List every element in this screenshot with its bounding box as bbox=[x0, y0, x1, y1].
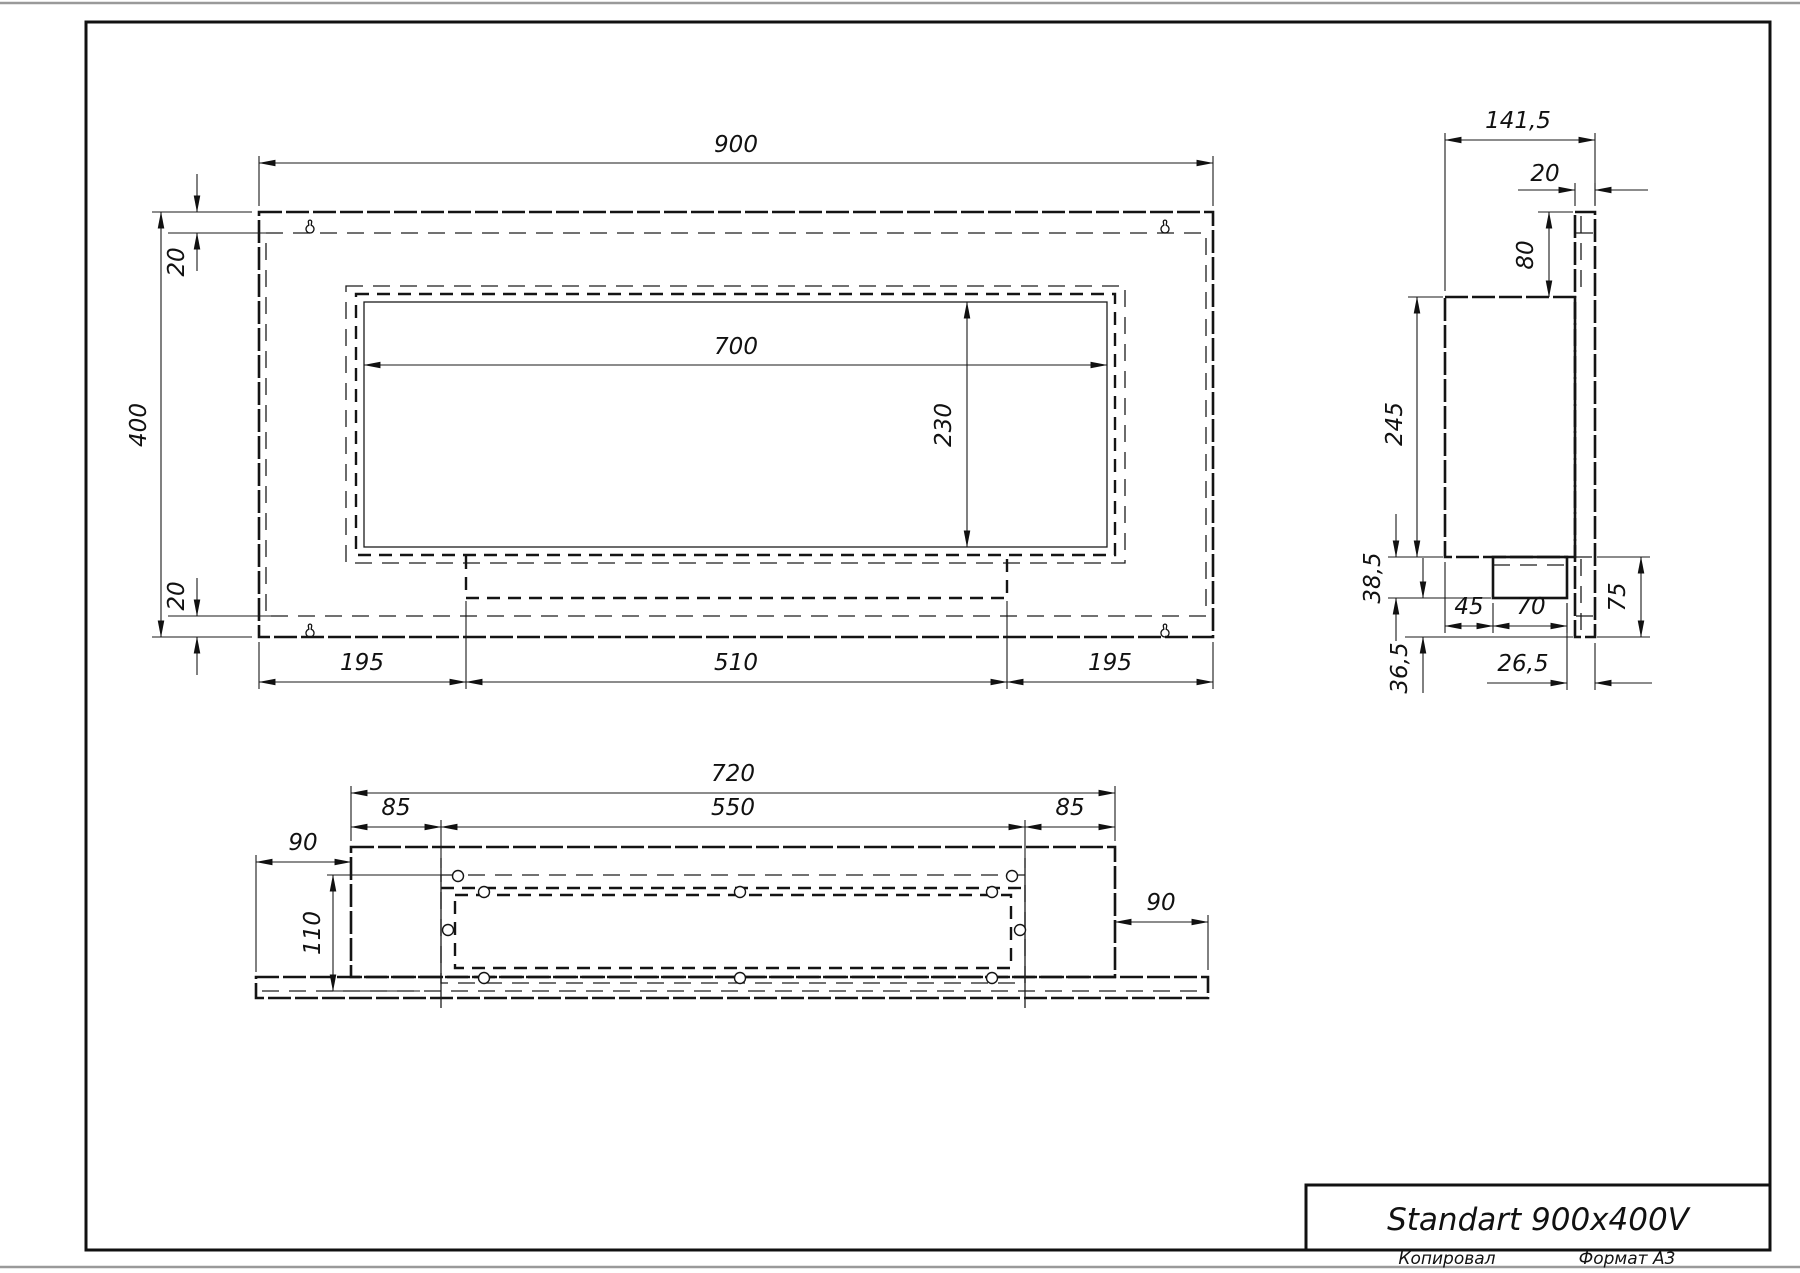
keyhole-slot-icon bbox=[1161, 624, 1169, 637]
dim-bottom-pattern-depth: 110 bbox=[300, 911, 326, 955]
dim-bottom-left-overhang: 90 bbox=[288, 830, 317, 856]
copied-label: Копировал bbox=[1398, 1249, 1495, 1269]
bottom-plate bbox=[256, 977, 1208, 998]
drawing-canvas: 900 400 20 20 700 230 195 510 195 bbox=[0, 0, 1800, 1273]
dim-bottom-right-overhang: 90 bbox=[1146, 890, 1175, 916]
drawing-title: Standart 900x400V bbox=[1387, 1202, 1692, 1238]
side-front-panel bbox=[1575, 212, 1595, 637]
side-tray bbox=[1493, 557, 1567, 598]
dim-bottom-body-width: 720 bbox=[711, 761, 755, 787]
front-hidden-outer-opening bbox=[346, 286, 1125, 563]
format-label: Формат A3 bbox=[1579, 1249, 1676, 1269]
dim-front-overall-height: 400 bbox=[126, 403, 152, 447]
dim-bottom-left-hole-offset: 85 bbox=[381, 795, 410, 821]
title-block: Standart 900x400V bbox=[1306, 1185, 1770, 1250]
drawing-sheet: 900 400 20 20 700 230 195 510 195 bbox=[0, 0, 1800, 1273]
front-outer-panel bbox=[259, 212, 1213, 637]
bottom-body bbox=[351, 847, 1115, 977]
dim-side-tray-to-front: 26,5 bbox=[1497, 651, 1548, 677]
bottom-view-dimensions: 720 85 550 85 90 110 90 bbox=[256, 761, 1208, 991]
dim-side-bottom-right-height: 75 bbox=[1605, 582, 1631, 611]
dim-front-right-offset: 195 bbox=[1088, 650, 1132, 676]
side-body bbox=[1445, 297, 1575, 557]
dim-front-opening-width: 700 bbox=[714, 334, 758, 360]
dim-side-body-height: 245 bbox=[1382, 402, 1408, 446]
sheet-border bbox=[0, 3, 1800, 1267]
dim-side-overall-depth: 141,5 bbox=[1485, 108, 1551, 134]
dim-front-overall-width: 900 bbox=[714, 132, 758, 158]
dim-side-tray-width: 70 bbox=[1516, 594, 1545, 620]
dim-side-bottom-inset: 36,5 bbox=[1387, 642, 1413, 693]
dim-side-tray-depth: 38,5 bbox=[1360, 552, 1386, 603]
front-hidden-burner-tray bbox=[466, 556, 1007, 598]
dim-side-tray-left-offset: 45 bbox=[1454, 594, 1483, 620]
side-view-dimensions: 141,5 20 80 245 38,5 36,5 45 70 bbox=[1360, 108, 1652, 694]
dim-front-bottom-flange: 20 bbox=[164, 581, 190, 610]
keyhole-slot-icon bbox=[306, 220, 314, 233]
bottom-view bbox=[256, 847, 1208, 1008]
dim-front-opening-height: 230 bbox=[931, 403, 957, 447]
dim-bottom-right-hole-offset: 85 bbox=[1055, 795, 1084, 821]
keyhole-slot-icon bbox=[1161, 220, 1169, 233]
dim-side-top-inset: 80 bbox=[1513, 240, 1539, 269]
dim-side-panel-thickness: 20 bbox=[1530, 161, 1559, 187]
dim-bottom-hole-span: 550 bbox=[711, 795, 755, 821]
dim-front-burner-width: 510 bbox=[714, 650, 758, 676]
front-view bbox=[259, 212, 1213, 637]
bottom-hidden-box bbox=[455, 895, 1011, 968]
dim-front-left-offset: 195 bbox=[340, 650, 384, 676]
side-view bbox=[1445, 212, 1595, 637]
front-view-dimensions: 900 400 20 20 700 230 195 510 195 bbox=[126, 132, 1213, 689]
keyhole-slot-icon bbox=[306, 624, 314, 637]
front-hidden-backbox bbox=[266, 233, 1206, 616]
dim-front-top-flange: 20 bbox=[164, 247, 190, 276]
